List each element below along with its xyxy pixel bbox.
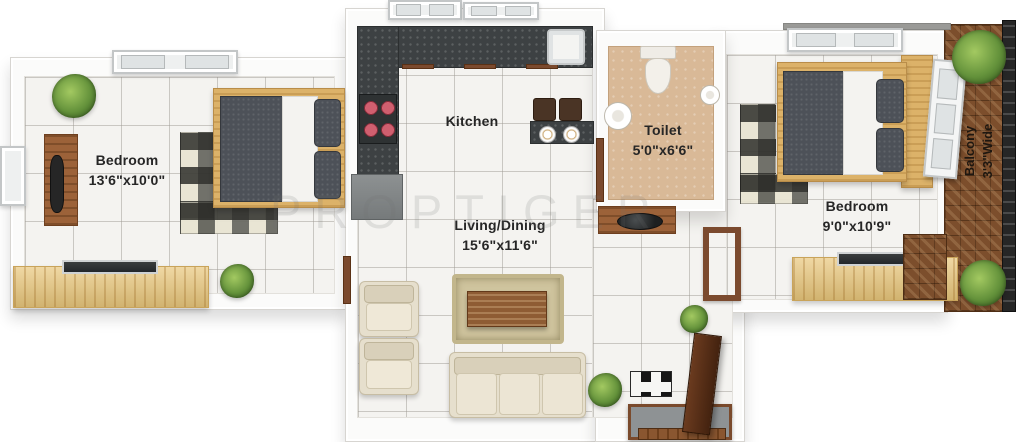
cabinet-front (402, 64, 434, 69)
room-dims: 9'0"x10'9" (793, 216, 921, 236)
sofa-cushion (499, 373, 540, 415)
kitchen-label: Kitchen (420, 111, 524, 131)
bed-pillow (876, 128, 904, 172)
room-dims: 13'6"x10'0" (60, 170, 194, 190)
wash-basin-bowl (617, 213, 663, 230)
chair-seat (366, 360, 412, 389)
chest-glass-panel (62, 260, 158, 274)
chair-back (364, 342, 414, 360)
bed-pillow (314, 99, 341, 147)
floor-plan: Bedroom 13'6"x10'0" Kitchen Toilet 5'0"x… (0, 0, 1018, 442)
bed-pillow (876, 79, 904, 123)
window-pane (121, 55, 164, 69)
balcony-access-floor (903, 234, 947, 300)
window-pane (796, 33, 836, 47)
room-name: Bedroom (793, 196, 921, 216)
bedroom-right-label: Bedroom 9'0"x10'9" (793, 196, 921, 237)
wash-basin-counter (598, 206, 676, 234)
balcony-label: Balcony 3'3"Wide (920, 92, 1018, 210)
bedroom-left-window-top (112, 50, 238, 74)
room-dims: 15'6"x11'6" (425, 235, 575, 255)
shoe-rug (630, 371, 672, 397)
window-pane (505, 6, 531, 16)
plant (588, 373, 622, 407)
bedroom-left-window-side (0, 146, 26, 206)
bed-blanket (783, 71, 845, 175)
sofa (449, 352, 586, 418)
window-pane (471, 6, 497, 16)
window-pane (396, 4, 422, 15)
plant (680, 305, 708, 333)
stove-cooktop (359, 94, 397, 144)
bar-stool (559, 98, 582, 121)
window-pane (185, 55, 228, 69)
room-name: Bedroom (60, 150, 194, 170)
room-name: Toilet (608, 120, 718, 140)
armchair (359, 338, 419, 395)
toilet-door-frame (596, 138, 604, 202)
room-dims: 5'0"x6'6" (608, 140, 718, 160)
kitchen-window (388, 0, 462, 20)
room-name: Balcony (961, 126, 979, 177)
palm-plant (952, 30, 1006, 84)
chair-back (364, 285, 414, 303)
bed-sheet (282, 96, 318, 202)
room-name: Living/Dining (425, 215, 575, 235)
bedroom-left-bed (213, 88, 345, 208)
room-dims: 3'3"Wide (979, 124, 997, 179)
sofa-cushion (456, 373, 497, 415)
plant (52, 74, 96, 118)
window-pane (854, 33, 894, 47)
plate (539, 126, 556, 143)
breakfast-counter (530, 121, 594, 144)
armchair (359, 281, 419, 337)
bedroom-left-label: Bedroom 13'6"x10'0" (60, 150, 194, 191)
sofa-cushion (542, 373, 583, 415)
room-name: Kitchen (420, 111, 524, 131)
kitchen-sink (547, 29, 585, 65)
living-dining-label: Living/Dining 15'6"x11'6" (425, 215, 575, 256)
bed-pillow (314, 151, 341, 199)
coffee-table (467, 291, 547, 327)
toilet-label: Toilet 5'0"x6'6" (608, 120, 718, 161)
palm-plant (960, 260, 1006, 306)
plant (220, 264, 254, 298)
plate (563, 126, 580, 143)
cabinet-front (464, 64, 496, 69)
bedroom-left-door-frame (343, 256, 351, 304)
bar-stool (533, 98, 556, 121)
bedroom-right-window (787, 28, 903, 52)
bedroom-right-open-door (703, 227, 741, 301)
chair-seat (366, 303, 412, 331)
shower-head (700, 85, 720, 105)
kitchen-window (463, 2, 539, 20)
bed-blanket (220, 96, 284, 202)
kitchen-base-cabinet (351, 174, 403, 220)
window-pane (429, 4, 455, 15)
